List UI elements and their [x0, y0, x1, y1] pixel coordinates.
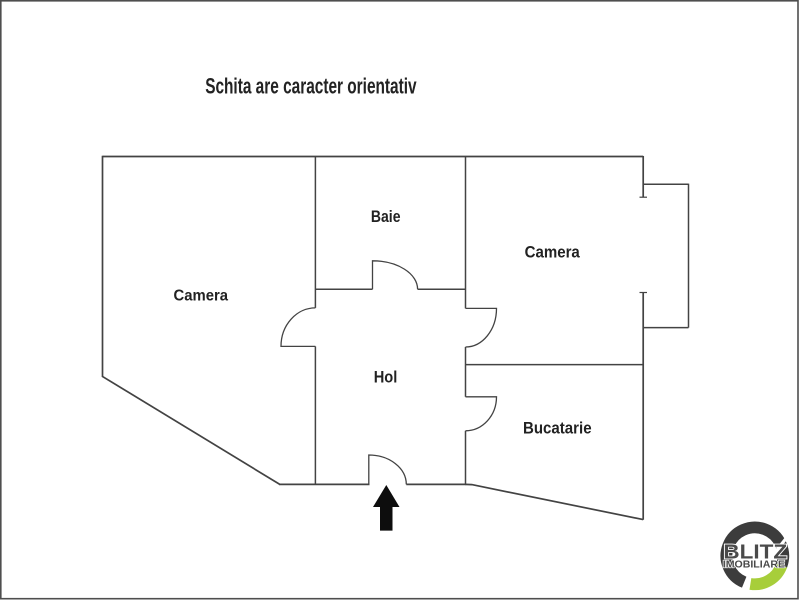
svg-text:Schita are caracter orientativ: Schita are caracter orientativ [205, 74, 417, 99]
svg-text:IMOBILIARE: IMOBILIARE [723, 560, 785, 571]
svg-text:Baie: Baie [371, 208, 401, 226]
svg-text:Bucatarie: Bucatarie [523, 419, 592, 438]
svg-text:Camera: Camera [174, 288, 229, 305]
svg-text:Hol: Hol [374, 368, 398, 387]
svg-text:Camera: Camera [525, 243, 581, 262]
